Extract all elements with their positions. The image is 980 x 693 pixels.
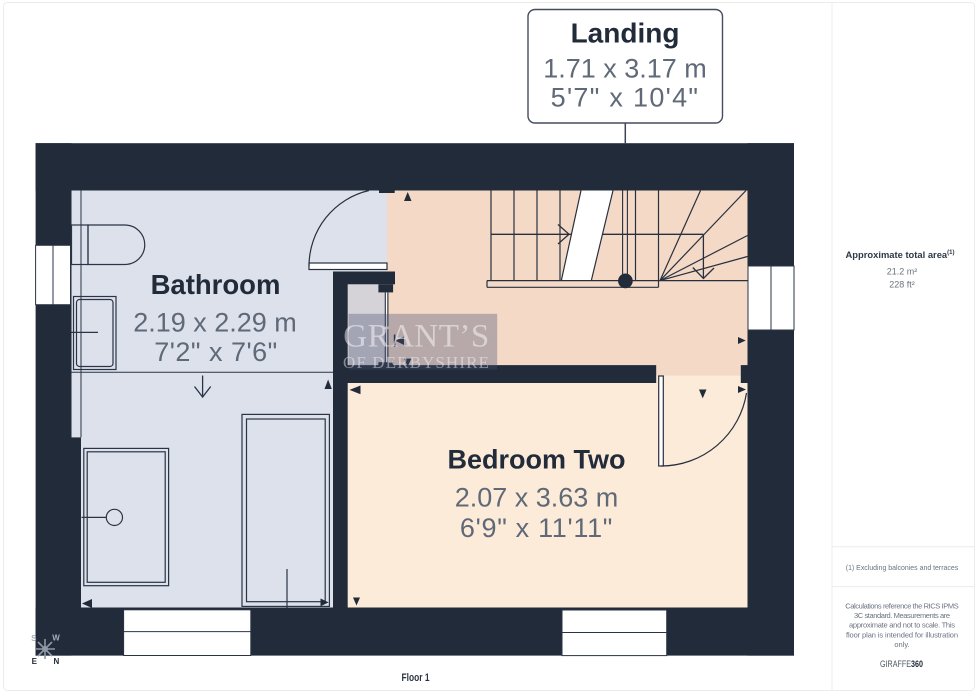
svg-text:W: W [52, 634, 60, 643]
svg-text:Landing: Landing [571, 18, 680, 49]
svg-text:228 ft²: 228 ft² [889, 279, 915, 289]
svg-text:Bedroom Two: Bedroom Two [448, 444, 626, 474]
svg-text:7'2" x 7'6": 7'2" x 7'6" [154, 337, 278, 367]
svg-text:Floor 1: Floor 1 [402, 672, 430, 684]
svg-text:approximate and not to scale.: approximate and not to scale. This [849, 621, 955, 630]
svg-text:2.07 x 3.63 m: 2.07 x 3.63 m [455, 483, 619, 513]
svg-text:21.2 m²: 21.2 m² [887, 267, 918, 277]
svg-text:GIRAFFE360: GIRAFFE360 [880, 659, 923, 670]
svg-text:only.: only. [894, 640, 909, 649]
svg-text:(1) Excluding balconies and te: (1) Excluding balconies and terraces [846, 563, 959, 572]
svg-text:1.71 x 3.17 m: 1.71 x 3.17 m [543, 54, 707, 84]
svg-text:N: N [54, 657, 60, 666]
svg-text:S: S [31, 634, 37, 643]
svg-text:2.19 x 2.29 m: 2.19 x 2.29 m [133, 308, 297, 338]
svg-text:3C standard. Measurements are: 3C standard. Measurements are [854, 611, 950, 620]
svg-text:Bathroom: Bathroom [151, 269, 281, 300]
svg-text:floor plan is intended for ill: floor plan is intended for illustration [846, 630, 958, 639]
svg-text:GRANT’S: GRANT’S [343, 319, 490, 355]
svg-text:OF DERBYSHIRE: OF DERBYSHIRE [343, 353, 490, 372]
svg-text:E: E [32, 657, 38, 666]
svg-text:5'7" x 10'4": 5'7" x 10'4" [551, 83, 700, 113]
svg-text:6'9" x 11'11": 6'9" x 11'11" [460, 513, 613, 543]
svg-text:Approximate total area(1): Approximate total area(1) [846, 249, 955, 260]
svg-text:Calculations reference the RIC: Calculations reference the RICS IPMS [845, 602, 959, 611]
